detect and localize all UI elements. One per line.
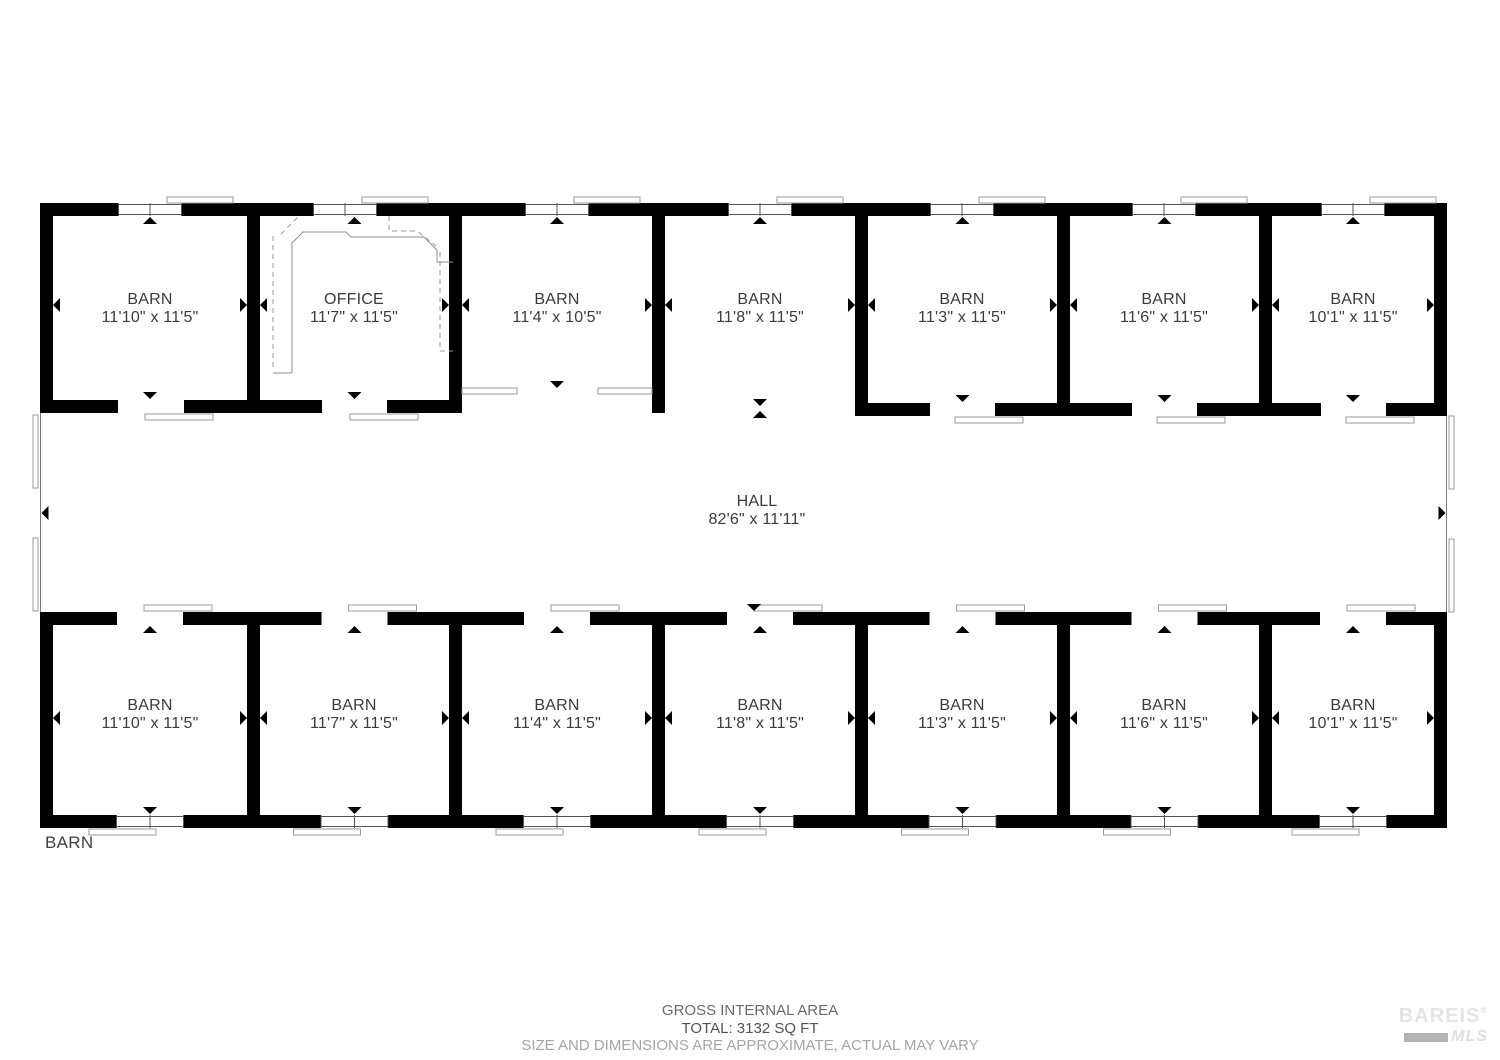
sliding-door-panel [33,415,38,488]
sliding-door-panel [462,388,517,394]
floorplan-canvas: BARN 11'10" x 11'5" OFFICE 11'7" x 11'5"… [0,0,1500,1060]
measure-arrow-up-icon [348,626,362,633]
measure-arrow-left-icon [462,298,469,312]
wall-segment [449,612,462,828]
room-label-top-7: BARN 10'1" x 11'5" [1308,291,1397,327]
door-opening [1132,403,1197,417]
measure-arrow-left-icon [1070,298,1077,312]
measure-arrow-right-icon [1252,298,1259,312]
room-dims: 11'7" x 11'5" [310,715,398,733]
watermark-mls-row: MLS [1399,1029,1488,1045]
measure-arrow-up-icon [550,217,564,224]
room-dims: 11'4" x 11'5" [513,715,601,733]
measure-arrow-up-icon [753,411,767,418]
sliding-door-panel [1292,829,1359,835]
measure-arrow-down-icon [1158,395,1172,402]
room-dims: 11'4" x 10'5" [512,309,601,327]
room-name: BARN [1308,291,1397,309]
measure-arrow-right-icon [848,711,855,725]
room-dims: 82'6" x 11'11" [708,511,805,529]
door-opening [322,400,387,414]
room-name: HALL [708,493,805,511]
sliding-door-panel [145,414,213,420]
door-opening [524,612,590,626]
measure-arrow-right-icon [1427,711,1434,725]
measure-arrow-right-icon [1050,298,1057,312]
measure-arrow-right-icon [442,298,449,312]
door-opening [930,403,995,417]
sliding-door-panel [699,829,766,835]
wall-segment [652,612,665,828]
sliding-door-panel [955,417,1023,423]
wall-segment [855,612,868,828]
wall-segment [247,203,260,413]
measure-arrow-down-icon [956,807,970,814]
measure-arrow-right-icon [1427,298,1434,312]
measure-arrow-right-icon [240,711,247,725]
measure-arrow-up-icon [550,626,564,633]
room-label-bottom-7: BARN 10'1" x 11'5" [1308,697,1397,733]
sliding-door-panel [1181,197,1247,203]
measure-arrow-left-icon [462,711,469,725]
floor-name-label: BARN [45,833,93,853]
measure-arrow-left-icon [42,506,49,520]
wall-segment [652,203,665,413]
room-label-bottom-4: BARN 11'8" x 11'5" [716,697,804,733]
sliding-door-panel [574,197,640,203]
sliding-door-panel [598,388,652,394]
wall-segment [1057,612,1070,828]
room-dims: 11'6" x 11'5" [1120,309,1208,327]
measure-arrow-left-icon [868,298,875,312]
door-opening [1132,612,1198,626]
measure-arrow-down-icon [143,807,157,814]
measure-arrow-left-icon [260,711,267,725]
measure-arrow-right-icon [1252,711,1259,725]
sliding-door-panel [167,197,233,203]
wall-segment [1057,203,1070,416]
measure-arrow-up-icon [348,217,362,224]
floorplan-graphics [0,0,1500,1060]
sliding-door-panel [89,829,156,835]
registered-mark-icon: ® [1480,1005,1488,1015]
room-label-top-5: BARN 11'3" x 11'5" [918,291,1006,327]
wall-segment [40,612,53,828]
measure-arrow-up-icon [753,626,767,633]
measure-arrow-down-icon [956,395,970,402]
room-dims: 11'8" x 11'5" [716,715,804,733]
room-dims: 11'3" x 11'5" [918,309,1006,327]
measure-arrow-up-icon [1158,217,1172,224]
measure-arrow-up-icon [956,626,970,633]
wall-segment [449,203,462,413]
room-label-top-3: BARN 11'4" x 10'5" [512,291,601,327]
room-name: BARN [1120,291,1208,309]
footer: GROSS INTERNAL AREA TOTAL: 3132 SQ FT SI… [0,1002,1500,1055]
measure-arrow-up-icon [1346,217,1360,224]
door-opening [1321,403,1386,417]
room-dims: 11'6" x 11'5" [1120,715,1208,733]
measure-arrow-down-icon [1346,807,1360,814]
sliding-door-panel [1449,416,1454,489]
measure-arrow-left-icon [1272,298,1279,312]
room-label-top-4: BARN 11'8" x 11'5" [716,291,804,327]
room-name: BARN [101,697,198,715]
room-name: BARN [716,291,804,309]
room-dims: 11'10" x 11'5" [101,715,198,733]
sliding-door-panel [1104,829,1171,835]
measure-arrow-up-icon [956,217,970,224]
measure-arrow-up-icon [143,217,157,224]
room-dims: 10'1" x 11'5" [1308,715,1397,733]
sliding-door-panel [349,605,417,611]
sliding-door-panel [144,605,212,611]
sliding-door-panel [551,605,619,611]
room-label-top-2: OFFICE 11'7" x 11'5" [310,291,398,327]
measure-arrow-left-icon [665,298,672,312]
sliding-door-panel [496,829,563,835]
room-label-bottom-6: BARN 11'6" x 11'5" [1120,697,1208,733]
measure-arrow-down-icon [753,399,767,406]
wall-segment [247,612,260,828]
wall-segment [1259,203,1272,416]
door-opening [322,612,388,626]
measure-arrow-up-icon [1158,626,1172,633]
measure-arrow-left-icon [1070,711,1077,725]
wall-segment [1434,612,1447,828]
sliding-door-panel [294,829,361,835]
sliding-door-panel [1347,605,1415,611]
room-name: BARN [512,291,601,309]
sliding-door-panel [1346,417,1414,423]
measure-arrow-left-icon [1272,711,1279,725]
room-label-bottom-1: BARN 11'10" x 11'5" [101,697,198,733]
room-dims: 11'7" x 11'5" [310,309,398,327]
room-label-top-1: BARN 11'10" x 11'5" [101,291,198,327]
sliding-door-panel [777,197,843,203]
watermark-bar [1404,1033,1448,1042]
watermark-bareis-text: BAREIS® [1399,1006,1488,1026]
room-name: BARN [716,697,804,715]
room-name: BARN [918,291,1006,309]
measure-arrow-right-icon [1050,711,1057,725]
room-dims: 10'1" x 11'5" [1308,309,1397,327]
sliding-door-panel [33,538,38,611]
watermark-mls-text: MLS [1451,1029,1488,1045]
door-opening [727,612,793,626]
room-name: BARN [918,697,1006,715]
wall-segment [1434,203,1447,416]
sliding-door-panel [1157,417,1225,423]
measure-arrow-down-icon [753,807,767,814]
room-name: BARN [101,291,198,309]
sliding-door-panel [362,197,428,203]
room-dims: 11'10" x 11'5" [101,309,198,327]
room-label-hall: HALL 82'6" x 11'11" [708,493,805,529]
room-label-bottom-2: BARN 11'7" x 11'5" [310,697,398,733]
room-label-bottom-5: BARN 11'3" x 11'5" [918,697,1006,733]
measure-arrow-down-icon [1346,395,1360,402]
measure-arrow-down-icon [550,807,564,814]
gross-internal-area-title: GROSS INTERNAL AREA [0,1002,1500,1020]
measure-arrow-left-icon [868,711,875,725]
room-name: BARN [1120,697,1208,715]
sliding-door-panel [350,414,418,420]
total-area-value: TOTAL: 3132 SQ FT [0,1020,1500,1038]
measure-arrow-up-icon [143,626,157,633]
sliding-door-panel [902,829,969,835]
measure-arrow-right-icon [645,711,652,725]
sliding-door-panel [754,605,822,611]
room-name: BARN [310,697,398,715]
room-label-top-6: BARN 11'6" x 11'5" [1120,291,1208,327]
room-dims: 11'3" x 11'5" [918,715,1006,733]
measure-arrow-right-icon [645,298,652,312]
measure-arrow-right-icon [442,711,449,725]
bareis-mls-watermark: BAREIS® MLS [1399,1006,1488,1045]
room-name: OFFICE [310,291,398,309]
measure-arrow-left-icon [53,298,60,312]
sliding-door-panel [1449,539,1454,612]
measure-arrow-right-icon [848,298,855,312]
measure-arrow-up-icon [753,217,767,224]
door-opening [930,612,996,626]
measure-arrow-right-icon [1439,506,1446,520]
door-opening [1320,612,1386,626]
room-name: BARN [513,697,601,715]
measure-arrow-left-icon [260,298,267,312]
measure-arrow-up-icon [1346,626,1360,633]
door-opening [117,612,183,626]
measure-arrow-left-icon [665,711,672,725]
wall-segment [40,203,53,413]
sliding-door-panel [1370,197,1436,203]
wall-segment [1259,612,1272,828]
measure-arrow-down-icon [348,807,362,814]
measure-arrow-down-icon [348,392,362,399]
door-opening [118,400,184,414]
measure-arrow-down-icon [143,392,157,399]
measure-arrow-down-icon [550,381,564,388]
measure-arrow-right-icon [240,298,247,312]
sliding-door-panel [1159,605,1227,611]
measure-arrow-left-icon [53,711,60,725]
disclaimer-text: SIZE AND DIMENSIONS ARE APPROXIMATE, ACT… [0,1037,1500,1055]
wall-segment [855,203,868,416]
room-dims: 11'8" x 11'5" [716,309,804,327]
room-label-bottom-3: BARN 11'4" x 11'5" [513,697,601,733]
sliding-door-panel [957,605,1025,611]
measure-arrow-down-icon [1158,807,1172,814]
room-name: BARN [1308,697,1397,715]
sliding-door-panel [979,197,1045,203]
